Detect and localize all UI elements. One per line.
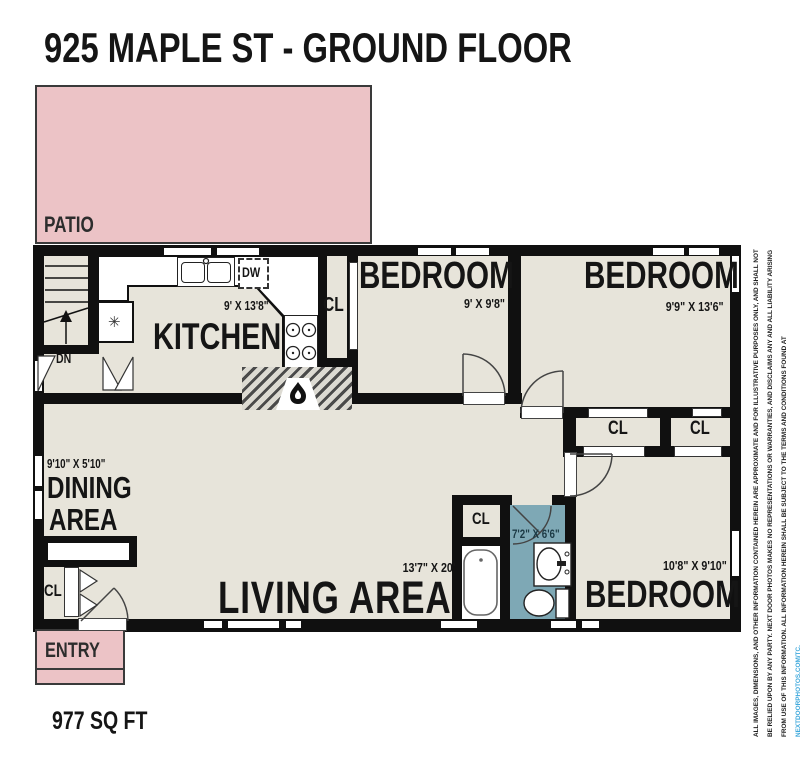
stairs-down-label: DN	[56, 351, 71, 366]
bedroom2-dims: 9'9" X 13'6"	[666, 299, 724, 314]
faucet-icon	[204, 259, 209, 264]
disclaimer-link: NEXTDOORPHOTOS.COM/TC.	[795, 645, 802, 737]
living-dims: 13'7" X 20'	[402, 560, 455, 575]
door-arc	[463, 354, 505, 396]
bedroom3-label: BEDROOM	[585, 574, 740, 617]
bedroom1-dims: 9' X 9'8"	[464, 296, 505, 311]
tub-drain	[479, 558, 483, 562]
faucet-handle	[565, 552, 569, 556]
door-arc	[521, 371, 563, 413]
toilet-tank	[556, 589, 569, 618]
stairs	[44, 266, 88, 344]
flame-icon	[290, 382, 306, 404]
bedroom3-dims: 10'8" X 9'10"	[663, 558, 727, 573]
kitchen-dims: 9' X 13'8"	[224, 298, 269, 313]
closet-label-kitchen: CL	[323, 294, 344, 317]
living-label: LIVING AREA	[218, 572, 452, 624]
toilet-bowl-icon	[524, 590, 554, 616]
plan-linework	[0, 0, 806, 768]
closet-label-hall-right: CL	[690, 418, 710, 440]
stove-burners	[287, 324, 316, 360]
closet-label-bath: CL	[472, 509, 490, 529]
door-panel	[115, 357, 133, 390]
bedroom2-label: BEDROOM	[584, 255, 739, 298]
closet-label-entry: CL	[44, 581, 62, 601]
floor-plan-page: 925 MAPLE ST - GROUND FLOOR PATIO ✳ DW	[0, 0, 806, 768]
faucet-handle	[565, 570, 569, 574]
dining-dims: 9'10" X 5'10"	[47, 457, 105, 471]
disclaimer-body: ALL IMAGES, DIMENSIONS, AND OTHER INFORM…	[753, 249, 788, 737]
closet-label-hall-left: CL	[608, 418, 628, 440]
door-arc	[570, 454, 612, 496]
disclaimer-text: ALL IMAGES, DIMENSIONS, AND OTHER INFORM…	[750, 245, 792, 737]
dining-label-line1: DINING	[47, 470, 132, 506]
kitchen-label: KITCHEN	[153, 316, 281, 358]
door-arc	[114, 588, 128, 621]
square-footage: 977 SQ FT	[52, 707, 147, 736]
closet-bifold-triangle	[80, 570, 97, 592]
bedroom1-label: BEDROOM	[359, 255, 514, 298]
dining-label-line2: AREA	[49, 502, 118, 538]
door-panel	[38, 356, 55, 391]
bath-faucet	[557, 561, 566, 566]
bathroom-dims: 7'2" X 6'6"	[512, 529, 560, 541]
